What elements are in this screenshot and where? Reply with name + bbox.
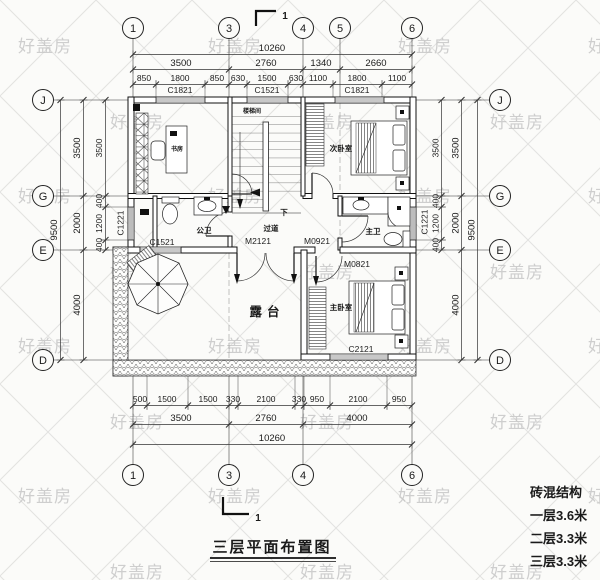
window-c1221-east: [410, 207, 416, 240]
room-label-bedroom2: 次卧室: [330, 143, 353, 153]
floorplan-canvas: 好盖房 好盖房 10260 3500 2760 1340: [0, 0, 600, 580]
dim-label: 4000: [451, 294, 462, 315]
dim-label: 1800: [171, 73, 190, 83]
dim-label: 330: [226, 394, 240, 404]
note-floor3: 三层3.3米: [530, 554, 588, 569]
window-code: C1521: [149, 237, 174, 247]
grid-label: J: [40, 95, 46, 107]
grid-label: E: [496, 245, 503, 257]
dim-label: 2100: [349, 394, 368, 404]
grid-label: G: [39, 191, 48, 203]
dim-label: 3500: [170, 413, 191, 424]
grid-label: G: [496, 191, 505, 203]
washer: [140, 209, 149, 215]
dim-label: 400: [94, 194, 104, 208]
room-label-stair: 楼梯间: [243, 107, 261, 115]
dim-label: 3500: [72, 137, 83, 158]
toilet: [384, 233, 402, 246]
stair-treads-lower: [232, 196, 266, 212]
dim-label: 1500: [199, 394, 218, 404]
window-c1521-top: [247, 97, 288, 103]
dim-label: 3500: [451, 137, 462, 158]
dim-label: 2660: [365, 58, 386, 69]
door-code: M2121: [245, 236, 271, 246]
pillow: [393, 150, 405, 171]
grid-label: J: [497, 95, 503, 107]
grid-label: E: [39, 245, 46, 257]
room-label-masterbath: 主卫: [366, 226, 381, 236]
toilet-tank: [162, 197, 179, 203]
grid-label: 5: [337, 23, 343, 35]
dim-label: 10260: [259, 433, 285, 444]
dim-label: 500: [133, 394, 147, 404]
dim-label: 3500: [431, 138, 441, 157]
dim-label: 850: [137, 73, 151, 83]
toilet: [163, 204, 178, 224]
room-label-hall: 过道: [264, 223, 279, 233]
section-number: 1: [282, 11, 288, 22]
window-code: C1221: [116, 210, 126, 235]
grid-label: D: [496, 355, 504, 367]
dim-label: 9500: [467, 219, 478, 240]
dim-label: 400: [431, 238, 441, 252]
dim-label: 2000: [451, 212, 462, 233]
dim-label: 1500: [158, 394, 177, 404]
sink-basin: [353, 200, 369, 210]
sink-basin: [198, 201, 216, 212]
grid-label: D: [39, 355, 47, 367]
pillow: [392, 285, 404, 305]
dim-label: 2000: [72, 212, 83, 233]
window-code: C1821: [167, 85, 192, 95]
grid-label: 3: [226, 470, 232, 482]
window-code: C1521: [254, 85, 279, 95]
room-label-terrace: 露台: [249, 304, 284, 319]
drawing-title: 三层平面布置图: [212, 538, 331, 556]
pillow: [392, 309, 404, 330]
grid-label: 1: [130, 470, 136, 482]
dim-label: 10260: [259, 43, 285, 54]
dim-label: 3500: [170, 58, 191, 69]
grid-label: 1: [130, 23, 136, 35]
dim-label: 630: [289, 73, 303, 83]
grid-label: 6: [409, 23, 415, 35]
window-c1821-left: [156, 97, 205, 103]
wardrobe: [309, 287, 326, 349]
wardrobe: [306, 104, 324, 166]
dim-label: 9500: [49, 219, 60, 240]
chair: [151, 141, 165, 160]
bookshelf: [136, 113, 148, 194]
floorplan-drawing: 好盖房 好盖房 10260 3500 2760 1340: [0, 0, 600, 580]
dim-label: 3500: [94, 138, 104, 157]
stair-rail: [263, 122, 269, 211]
window-c2121-bedroom: [330, 354, 388, 360]
pillow: [393, 125, 405, 145]
grid-label: 4: [300, 23, 306, 35]
dim-label: 630: [231, 73, 245, 83]
dim-label: 950: [310, 394, 324, 404]
dim-label: 850: [210, 73, 224, 83]
stair-down-label: 下: [280, 208, 288, 217]
note-floor1: 一层3.6米: [530, 508, 588, 523]
dim-label: 400: [431, 194, 441, 208]
dim-label: 400: [94, 238, 104, 252]
dim-label: 1200: [431, 214, 441, 233]
dim-label: 1100: [309, 73, 328, 83]
toilet-tank: [403, 231, 410, 247]
column: [133, 104, 140, 111]
window-code: C2121: [348, 344, 373, 354]
dim-label: 1340: [310, 58, 331, 69]
dim-label: 1800: [348, 73, 367, 83]
room-label-study: 书房: [171, 145, 183, 153]
dim-label: 1500: [258, 73, 277, 83]
dim-label: 950: [392, 394, 406, 404]
dim-label: 1100: [388, 73, 407, 83]
dim-label: 4000: [346, 413, 367, 424]
dim-label: 4000: [72, 294, 83, 315]
dim-label: 330: [292, 394, 306, 404]
dim-label: 2760: [255, 413, 276, 424]
room-label-publicbath: 公卫: [197, 226, 212, 235]
note-structure: 砖混结构: [530, 485, 582, 500]
section-number: 1: [255, 513, 261, 524]
dim-label: 2100: [257, 394, 276, 404]
window-code: C1221: [420, 209, 430, 234]
window-c1221-west: [128, 207, 134, 240]
dim-label: 1200: [94, 214, 104, 233]
door-code: M0921: [304, 236, 330, 246]
window-c1821-right: [335, 97, 384, 103]
grid-label: 4: [300, 470, 306, 482]
grid-label: 3: [226, 23, 232, 35]
drawing-title-block: 三层平面布置图: [210, 538, 336, 562]
door-code: M0821: [344, 259, 370, 269]
grid-label: 6: [409, 470, 415, 482]
dim-label: 2760: [255, 58, 276, 69]
window-code: C1821: [344, 85, 369, 95]
note-floor2: 二层3.3米: [530, 531, 588, 546]
room-label-masterbed: 主卧室: [330, 302, 353, 312]
